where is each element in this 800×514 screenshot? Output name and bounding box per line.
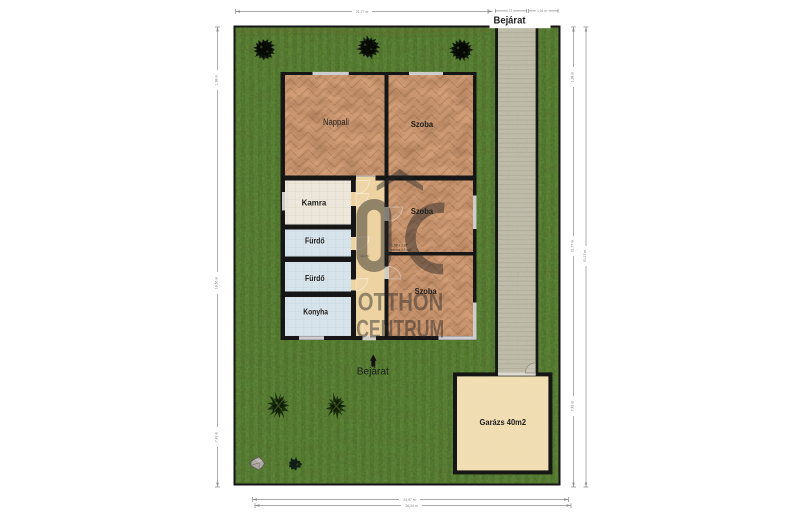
svg-text:Kamra: Kamra — [302, 198, 327, 208]
svg-text:1,04 m: 1,04 m — [537, 9, 547, 13]
svg-text:21,77 m: 21,77 m — [571, 240, 575, 252]
svg-text:26,04 m: 26,04 m — [405, 504, 417, 508]
svg-text:50,17 m: 50,17 m — [583, 250, 587, 262]
svg-text:Garázs 40m2: Garázs 40m2 — [480, 417, 527, 427]
svg-text:OTTHON: OTTHON — [358, 289, 444, 317]
svg-text:Fürdő: Fürdő — [305, 236, 325, 246]
svg-text:7,43 m: 7,43 m — [215, 432, 219, 443]
svg-text:1,98 m: 1,98 m — [571, 72, 575, 83]
svg-text:7,43 m: 7,43 m — [571, 401, 575, 412]
svg-text:18,56 m: 18,56 m — [215, 277, 219, 289]
svg-text:1,98 m: 1,98 m — [215, 75, 219, 86]
svg-text:1,98 x 2,07: 1,98 x 2,07 — [391, 244, 408, 248]
svg-text:24,97 m: 24,97 m — [403, 498, 415, 502]
svg-text:Bejárat: Bejárat — [494, 16, 527, 27]
svg-text:21,77 m: 21,77 m — [356, 10, 368, 14]
svg-text:Nappali: Nappali — [323, 117, 349, 127]
svg-text:Konyha: Konyha — [303, 307, 328, 317]
svg-text:CENTRUM: CENTRUM — [356, 316, 444, 344]
svg-text:Szoba: Szoba — [411, 119, 434, 129]
svg-text:1,72 m: 1,72 m — [506, 9, 516, 13]
svg-text:Fürdő: Fürdő — [305, 273, 325, 283]
svg-text:Bejárat: Bejárat — [357, 367, 389, 378]
